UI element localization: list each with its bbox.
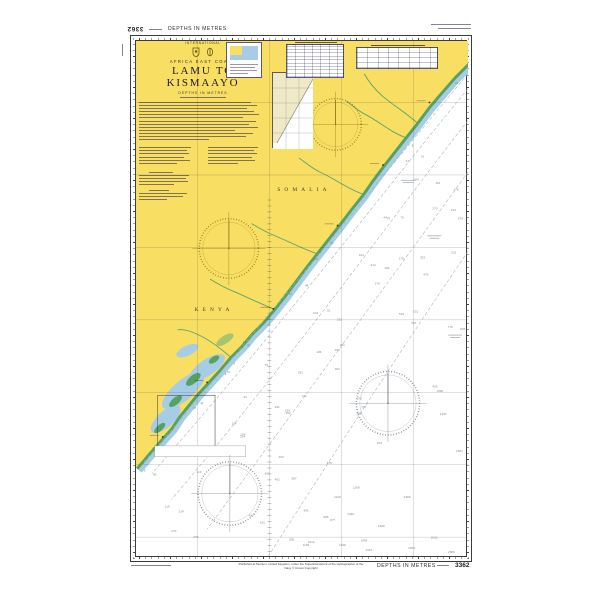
sounding: 379 [193,535,198,539]
sounding: 1169 [353,486,360,490]
bottom-print-note [437,565,449,566]
sounding: 1469 [361,539,368,543]
sounding: 178 [453,188,458,192]
sounding: 379 [458,216,463,220]
sounding: 196 [316,350,321,354]
sounding: 1014 [308,540,315,544]
tidal-levels-table [356,47,438,69]
sounding: 675 [357,396,362,400]
sounding: 214 [179,510,184,514]
sounding: 675 [327,461,332,465]
notes-columns [139,145,267,166]
sounding: 66 [153,472,157,476]
sounding: 2586 [448,550,455,554]
sounding: 587 [411,321,416,325]
sounding: 104 [414,178,419,182]
sounding: 251 [340,343,345,347]
sounding-shallow: 79 [315,257,318,261]
sounding: 1336 [440,412,447,416]
sounding: 905 [323,515,328,519]
sounding: 44 [305,283,309,287]
sounding: 1336 [347,512,354,516]
sounding: 977 [330,518,335,522]
source-data-diagram [272,72,312,148]
sounding: 452 [265,471,270,475]
chart-notes [139,102,267,200]
sounding: 1959 [408,546,415,550]
sounding: 196 [285,409,290,413]
sounding: 356 [335,348,340,352]
sounding: 587 [292,477,297,481]
sounding: 214 [371,263,376,267]
bottom-depths-label: DEPTHS IN METRES [377,563,436,569]
sounding: 232 [337,318,342,322]
sounding: 1090 [436,389,443,393]
sea-notes [401,180,462,338]
sounding-shallow: 13 [289,292,292,296]
sounding: 737 [361,405,366,409]
sounding: 44 [406,159,410,163]
sounding: 251 [298,371,303,375]
source-diagram-canvas [273,73,313,149]
index-map-land [230,46,242,55]
fold-mark [122,44,123,56]
sounding: 104 [232,422,237,426]
sounding: 119 [435,181,440,185]
sounding: 905 [289,538,294,542]
sounding: 91 [244,395,248,399]
compass-rose-sea-south [191,455,268,532]
bottom-left-note [131,565,171,566]
depths-in-metres-label: DEPTHS IN METRES [139,91,267,95]
scale-statement-line [180,97,226,98]
sounding: 79 [400,216,404,220]
sounding: 178 [399,257,404,261]
sounding: 402 [275,478,280,482]
top-right-note-line1 [431,24,471,25]
sounding: 270 [432,207,437,211]
sounding: 905 [433,384,438,388]
publication-note: Published at Taunton, United Kingdom, un… [236,563,366,570]
sounding-shallow: 31 [227,370,230,374]
kenya-crest-icon [206,47,214,57]
sounding: 104 [359,253,364,257]
sounding: 1469 [339,543,346,547]
top-margin-small-note [149,29,162,30]
sounding: 311 [302,394,307,398]
sounding: 1469 [404,495,411,499]
authority-note [139,190,267,200]
tidal-streams-table [286,44,344,78]
sounding: 427 [249,514,254,518]
sounding: 531 [451,250,456,254]
chart-number-bottom: 3362 [455,562,469,569]
sounding-shallow: 66 [318,250,321,254]
sounding: 31 [421,155,425,159]
page: { "chart": { "number": "3362", "title": … [0,0,600,600]
sounding: 291 [275,405,280,409]
chart-number-top-inverted: 3362 [127,25,143,32]
label-kenya: KENYA [195,307,234,313]
sounding: 478 [423,273,428,277]
sounding: 1561 [366,548,373,552]
sounding: 91 [327,308,331,312]
sounding: 645 [357,412,362,416]
sounding: 941 [304,508,309,512]
sounding: 402 [335,367,340,371]
sounding: 1561 [456,449,463,453]
sounding: 214 [451,208,456,212]
sounding: 333 [279,455,284,459]
sounding-shallow: 9 [234,362,236,366]
sounding-shallow: 37 [193,406,196,410]
caution-note [139,172,267,185]
compass-rose-sea-mid [349,364,426,441]
sounding: 146 [384,266,389,270]
sounding: 615 [260,520,265,524]
sounding: 104 [313,311,318,315]
sounding: 79 [265,363,269,367]
label-somalia: SOMALIA [277,187,330,193]
sounding-shallow: 18 [455,81,458,85]
sounding-shallow: 79 [330,241,333,245]
sounding: 1608 [378,524,385,528]
uk-crest-icon [192,47,200,57]
sounding: 119 [165,505,170,509]
sounding: 2012 [431,536,438,540]
sounding-shallow: 9 [144,468,146,472]
publication-line2: © Crown Copyright [292,566,317,570]
sounding: 870 [377,441,382,445]
sea-note-box [155,446,246,457]
sounding-shallow: 44 [200,401,203,405]
sounding: 1129 [334,495,341,499]
sounding: 770 [448,325,453,329]
graduation-ticks-left [133,38,135,559]
sounding-shallow: 13 [243,340,246,344]
top-right-note-line2 [438,28,471,29]
top-depths-label: DEPTHS IN METRES [168,26,227,32]
sounding: 333 [420,256,425,260]
sounding-shallow: 79 [247,343,250,347]
sounding: 79 [387,217,391,221]
sounding: 119 [197,470,202,474]
sounding: 134 [240,433,245,437]
sounding: 836 [460,327,465,331]
sounding: 270 [171,529,176,533]
sounding: 531 [413,310,418,314]
sounding: 178 [375,282,380,286]
graduation-ticks-top [133,38,469,40]
satellite-imagery-index [226,42,262,78]
sounding: 531 [399,312,404,316]
